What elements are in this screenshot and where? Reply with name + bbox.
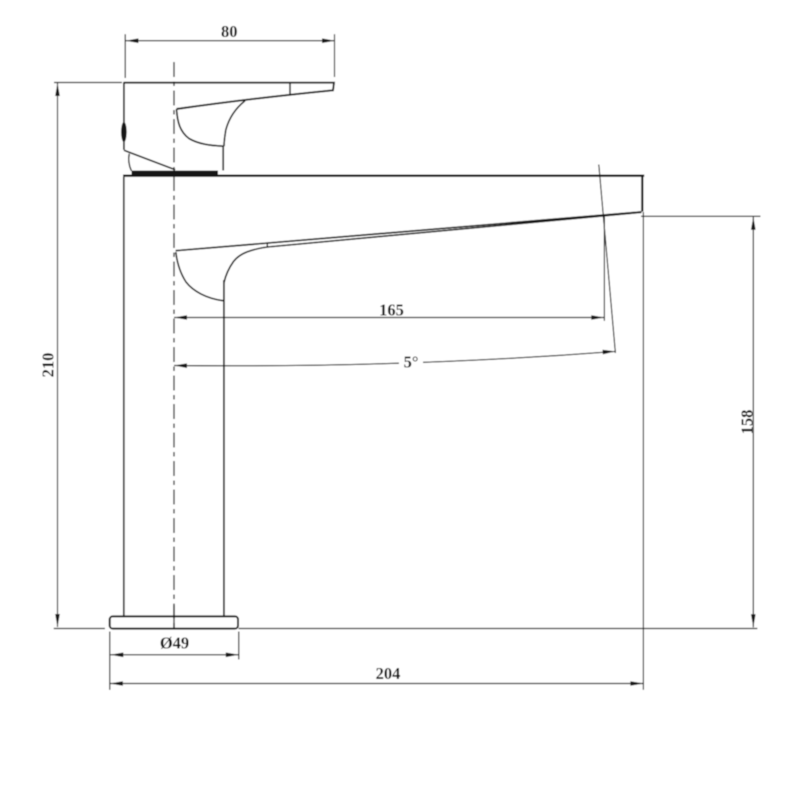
svg-text:Ø49: Ø49 [160, 634, 189, 653]
svg-text:165: 165 [379, 301, 404, 320]
svg-text:5°: 5° [404, 353, 419, 372]
svg-text:158: 158 [737, 410, 756, 435]
svg-text:204: 204 [376, 664, 401, 683]
svg-text:80: 80 [221, 22, 238, 41]
svg-text:210: 210 [39, 353, 58, 378]
